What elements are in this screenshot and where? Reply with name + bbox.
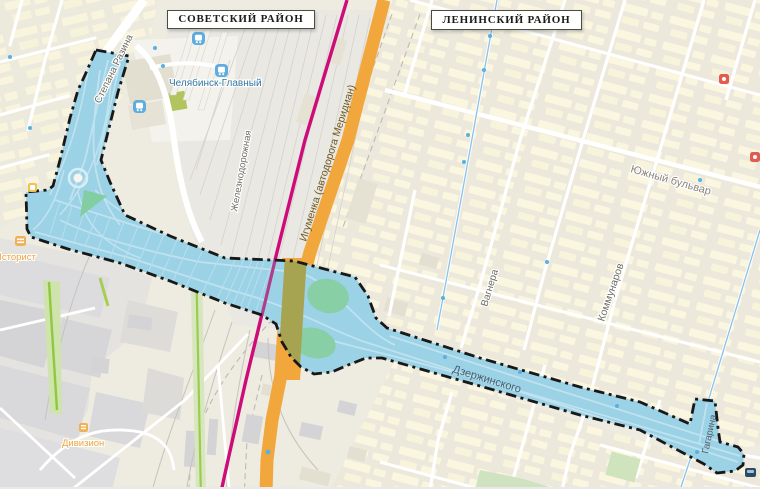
svg-text:Челябинск-Главный: Челябинск-Главный <box>169 77 262 89</box>
svg-text:Историст: Историст <box>0 252 36 263</box>
svg-text:Дивизион: Дивизион <box>62 438 104 449</box>
